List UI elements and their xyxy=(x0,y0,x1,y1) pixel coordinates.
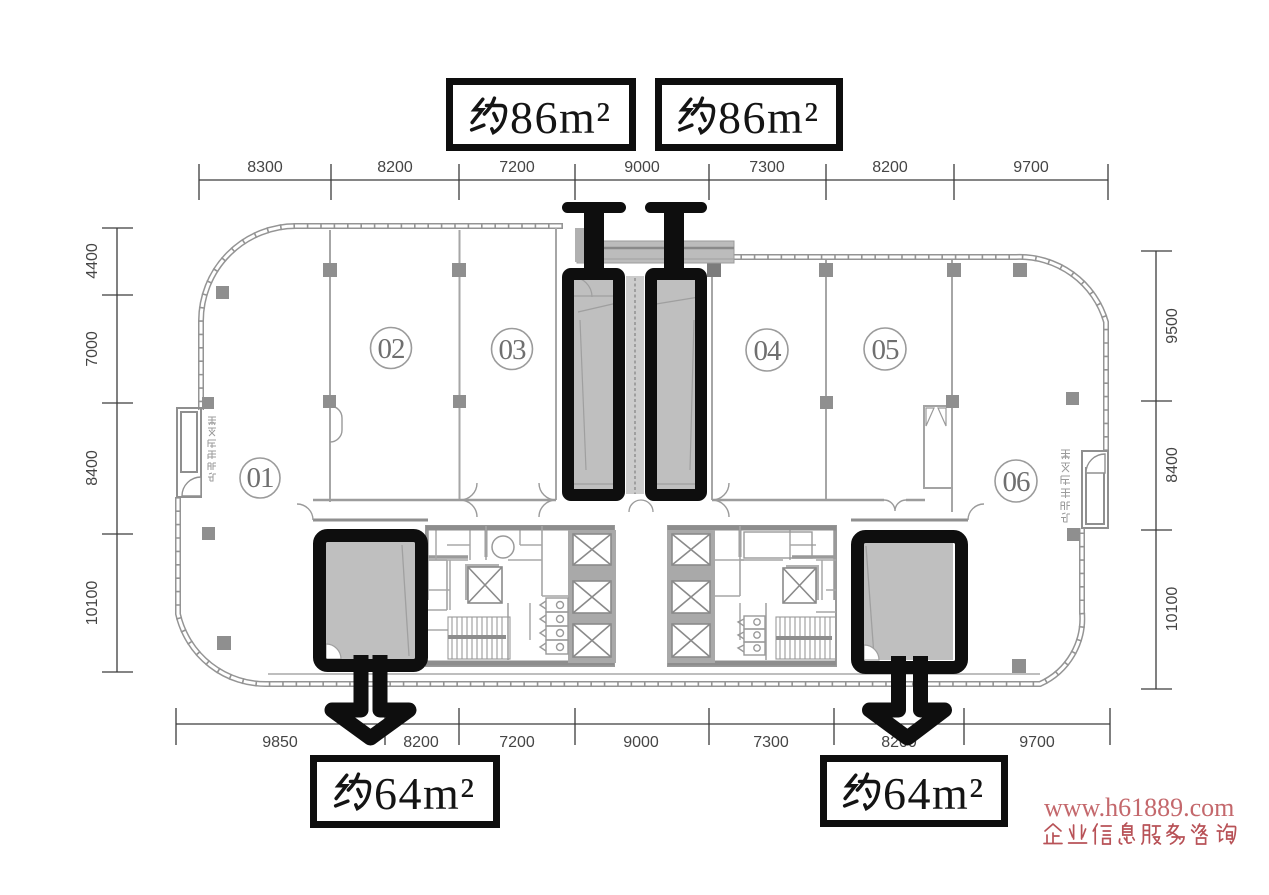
svg-text:8400: 8400 xyxy=(84,450,101,486)
svg-text:05: 05 xyxy=(872,334,900,366)
svg-text:86m²: 86m² xyxy=(510,92,612,143)
svg-text:9700: 9700 xyxy=(1019,734,1055,751)
svg-text:9500: 9500 xyxy=(1164,308,1181,344)
svg-text:04: 04 xyxy=(754,335,783,367)
svg-text:10100: 10100 xyxy=(1164,587,1181,632)
svg-text:8200: 8200 xyxy=(377,159,413,176)
svg-text:9000: 9000 xyxy=(623,734,659,751)
svg-text:7300: 7300 xyxy=(749,159,785,176)
svg-text:7300: 7300 xyxy=(753,734,789,751)
svg-text:7000: 7000 xyxy=(84,331,101,367)
svg-text:8200: 8200 xyxy=(872,159,908,176)
svg-text:9850: 9850 xyxy=(262,734,298,751)
svg-text:8400: 8400 xyxy=(1164,447,1181,483)
svg-text:64m²: 64m² xyxy=(883,768,985,819)
svg-text:9000: 9000 xyxy=(624,159,660,176)
svg-text:01: 01 xyxy=(247,462,274,494)
svg-text:7200: 7200 xyxy=(499,159,535,176)
svg-text:64m²: 64m² xyxy=(374,768,476,819)
svg-text:7200: 7200 xyxy=(499,734,535,751)
svg-text:4400: 4400 xyxy=(84,243,101,279)
svg-text:9700: 9700 xyxy=(1013,159,1049,176)
svg-text:www.h61889.com: www.h61889.com xyxy=(1044,793,1234,822)
svg-text:10100: 10100 xyxy=(84,581,101,626)
svg-text:8200: 8200 xyxy=(403,734,439,751)
svg-text:03: 03 xyxy=(499,334,527,366)
svg-text:06: 06 xyxy=(1003,466,1031,498)
svg-text:8300: 8300 xyxy=(247,159,283,176)
svg-text:86m²: 86m² xyxy=(718,92,820,143)
svg-text:02: 02 xyxy=(378,333,405,365)
